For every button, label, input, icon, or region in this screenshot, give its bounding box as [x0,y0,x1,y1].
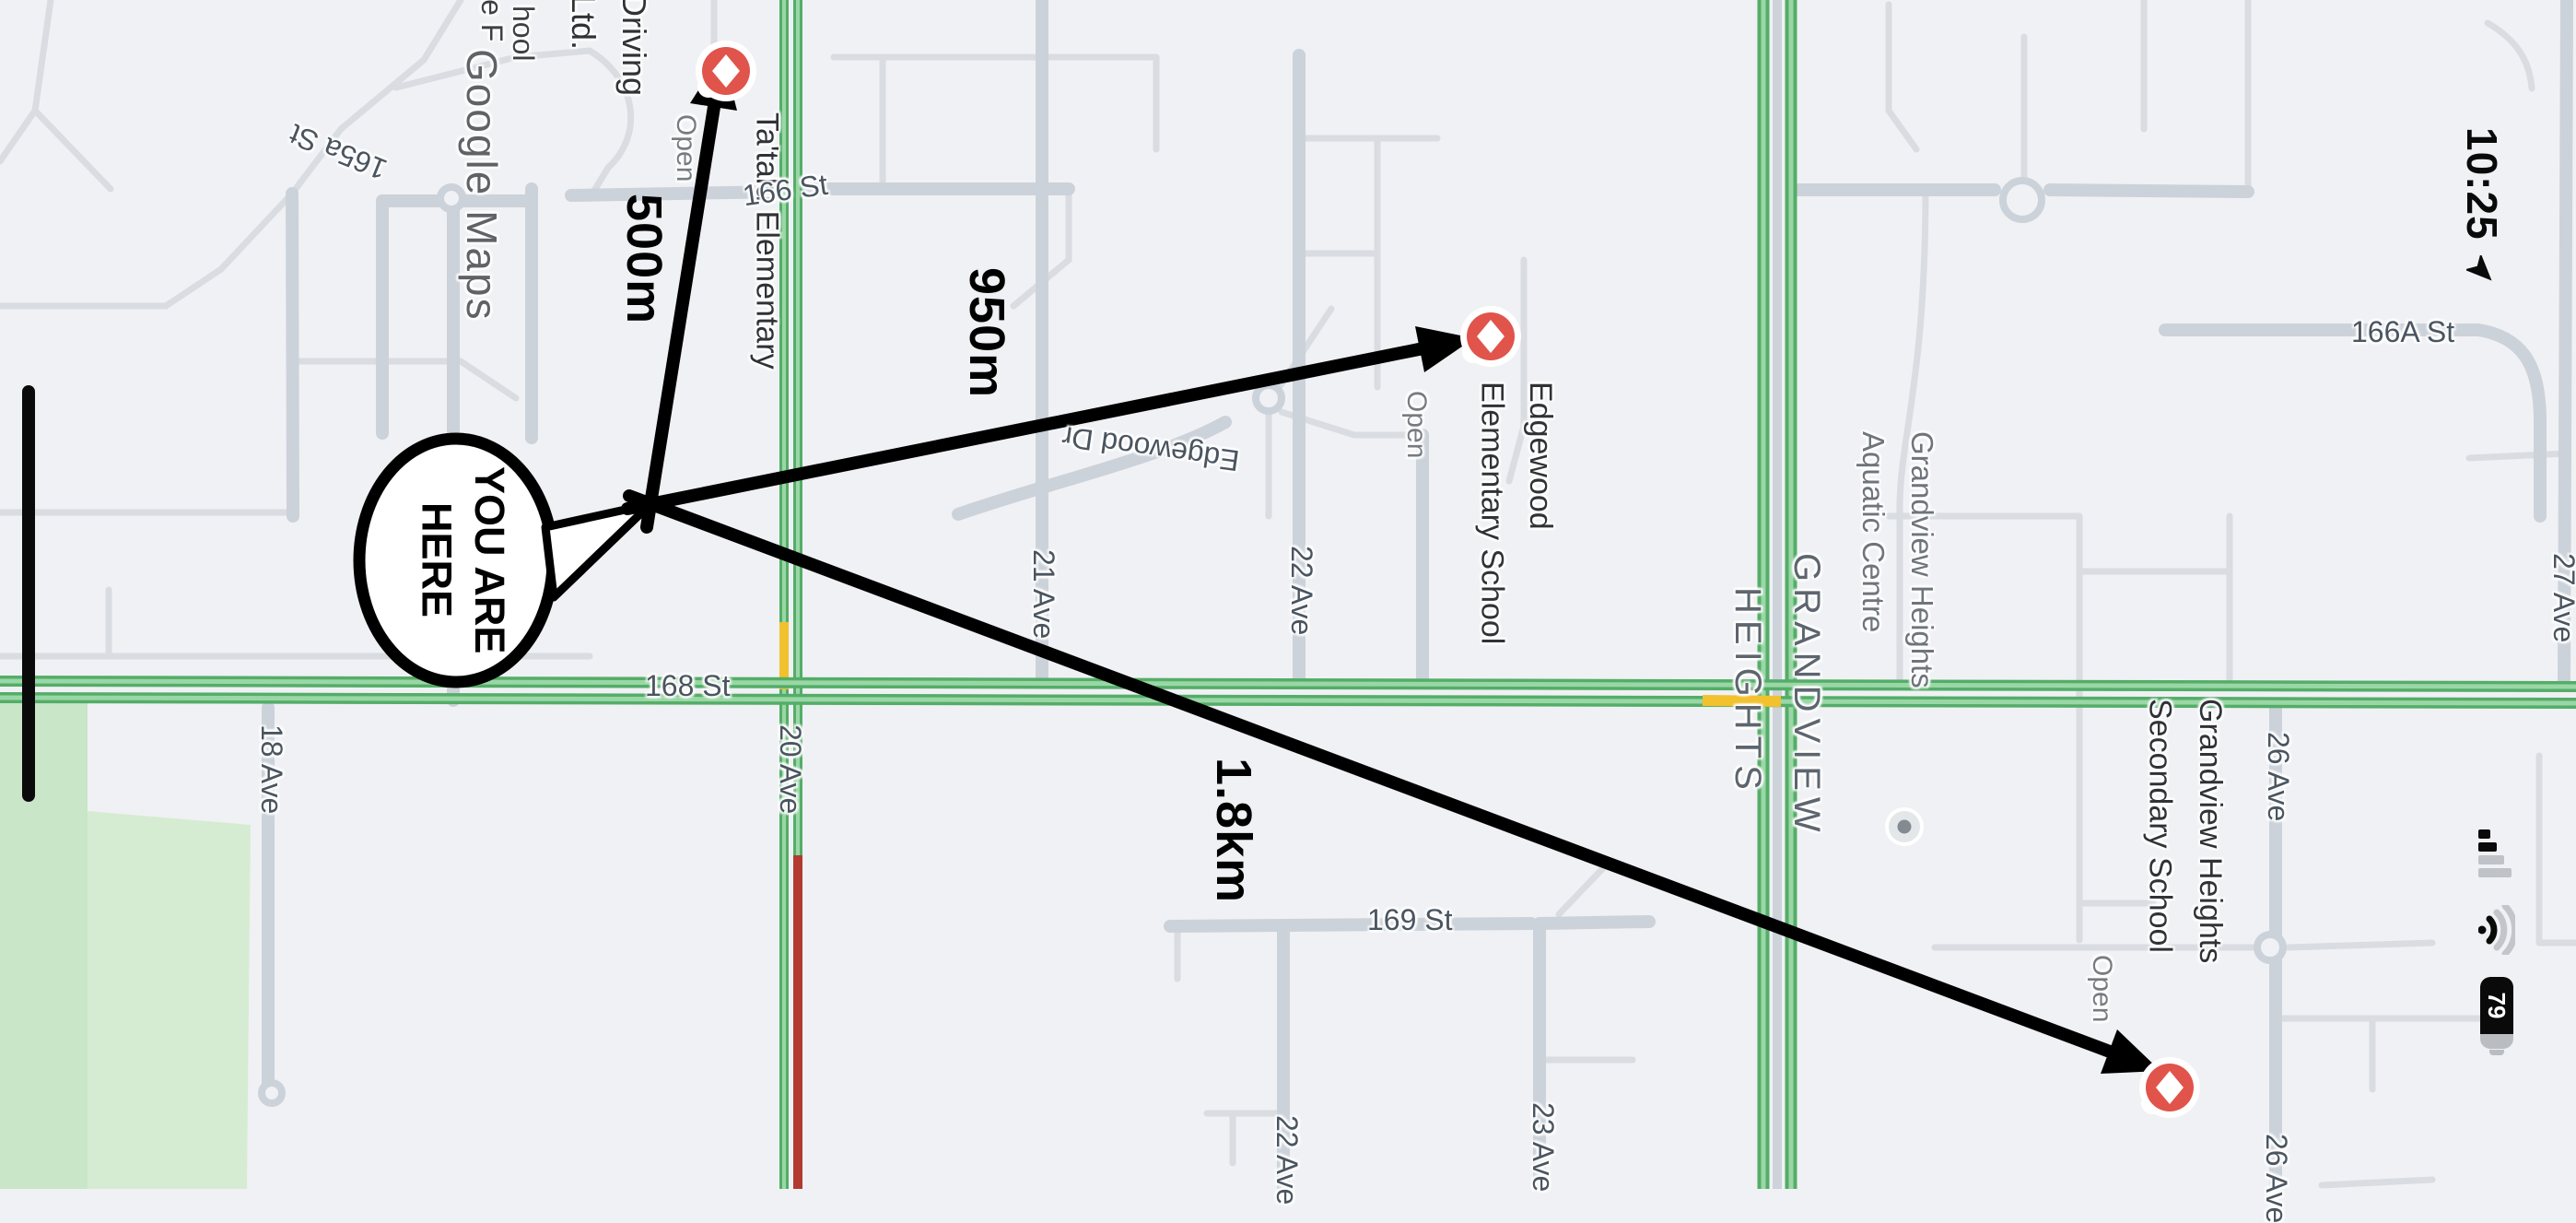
distance-label-500m: 500m [615,194,673,324]
clock-text: 10:25 [2457,127,2507,241]
area-label-line: GRANDVIEW [1786,553,1827,839]
wifi-icon [2478,905,2515,955]
area-label-line: HEIGHTS [1727,587,1768,796]
school-marker-icon[interactable] [2137,1055,2202,1120]
street-label-18-ave: 18 Ave [254,724,288,814]
poi-label-edgewood-elementary[interactable]: Edgewood Elementary School [1463,382,1564,644]
poi-label-tatalu-elementary[interactable]: Ta'talu Elementary [743,112,791,370]
poi-open-status: Open [2086,955,2117,1022]
battery-percent: 79 [2480,977,2513,1034]
battery-cap [2489,1050,2504,1055]
cellular-signal-icon [2478,829,2515,883]
google-maps-watermark: Google Maps [457,49,507,322]
map-screenshot: Google Maps le F hool Driving Ltd. Open … [0,0,2576,1189]
street-label-20-ave: 20 Ave [773,724,807,814]
street-label-26-ave: 26 Ave [2259,1134,2293,1223]
status-clock-cluster: 10:25 [2447,125,2517,319]
you-are-here-line: HERE [413,502,460,617]
status-icons-cluster: 79 [2469,828,2524,1097]
street-label-23-ave: 23 Ave [1526,1102,1560,1192]
street-label-27-ave: 27 Ave [2547,553,2576,642]
school-marker-icon[interactable] [694,39,758,103]
poi-open-status: Open [670,114,701,182]
poi-label-aquatic-centre[interactable]: Grandview Heights Aquatic Centre [1850,431,1946,688]
street-label-169-st: 169 St [1367,903,1453,937]
distance-label-950m: 950m [958,267,1015,398]
poi-label-driving[interactable]: Driving [608,0,660,96]
home-indicator-bar[interactable] [22,385,35,802]
poi-label-driving-ltd[interactable]: Ltd. [557,0,609,50]
street-label-166a-st: 166A St [2351,315,2454,349]
street-label-168-st: 168 St [645,669,731,703]
poi-label-fragment: hool [506,6,540,62]
area-label-grandview-heights: GRANDVIEW HEIGHTS [1744,553,1836,829]
navigation-arrow-icon [2466,255,2498,287]
roundabouts [262,181,2283,1103]
you-are-here-line: YOU ARE [466,466,513,653]
street-label-22-ave: 22 Ave [1284,546,1318,635]
poi-label-fragment: le F [474,0,509,41]
poi-open-status: Open [1400,391,1432,458]
park-areas [0,698,251,1189]
poi-label-grandview-secondary[interactable]: Grandview Heights Secondary School [2134,699,2235,963]
street-label-26-ave: 26 Ave [2261,732,2295,821]
you-are-here-text: YOU ARE HERE [398,463,516,658]
distance-label-1.8km: 1.8km [1205,758,1262,903]
battery-icon: 79 [2480,977,2513,1055]
street-label-21-ave: 21 Ave [1026,549,1060,639]
street-label-22-ave: 22 Ave [1270,1115,1304,1205]
school-marker-icon[interactable] [1458,304,1523,369]
named-roads [268,0,2567,1189]
poi-dot-icon[interactable] [1883,806,1926,848]
